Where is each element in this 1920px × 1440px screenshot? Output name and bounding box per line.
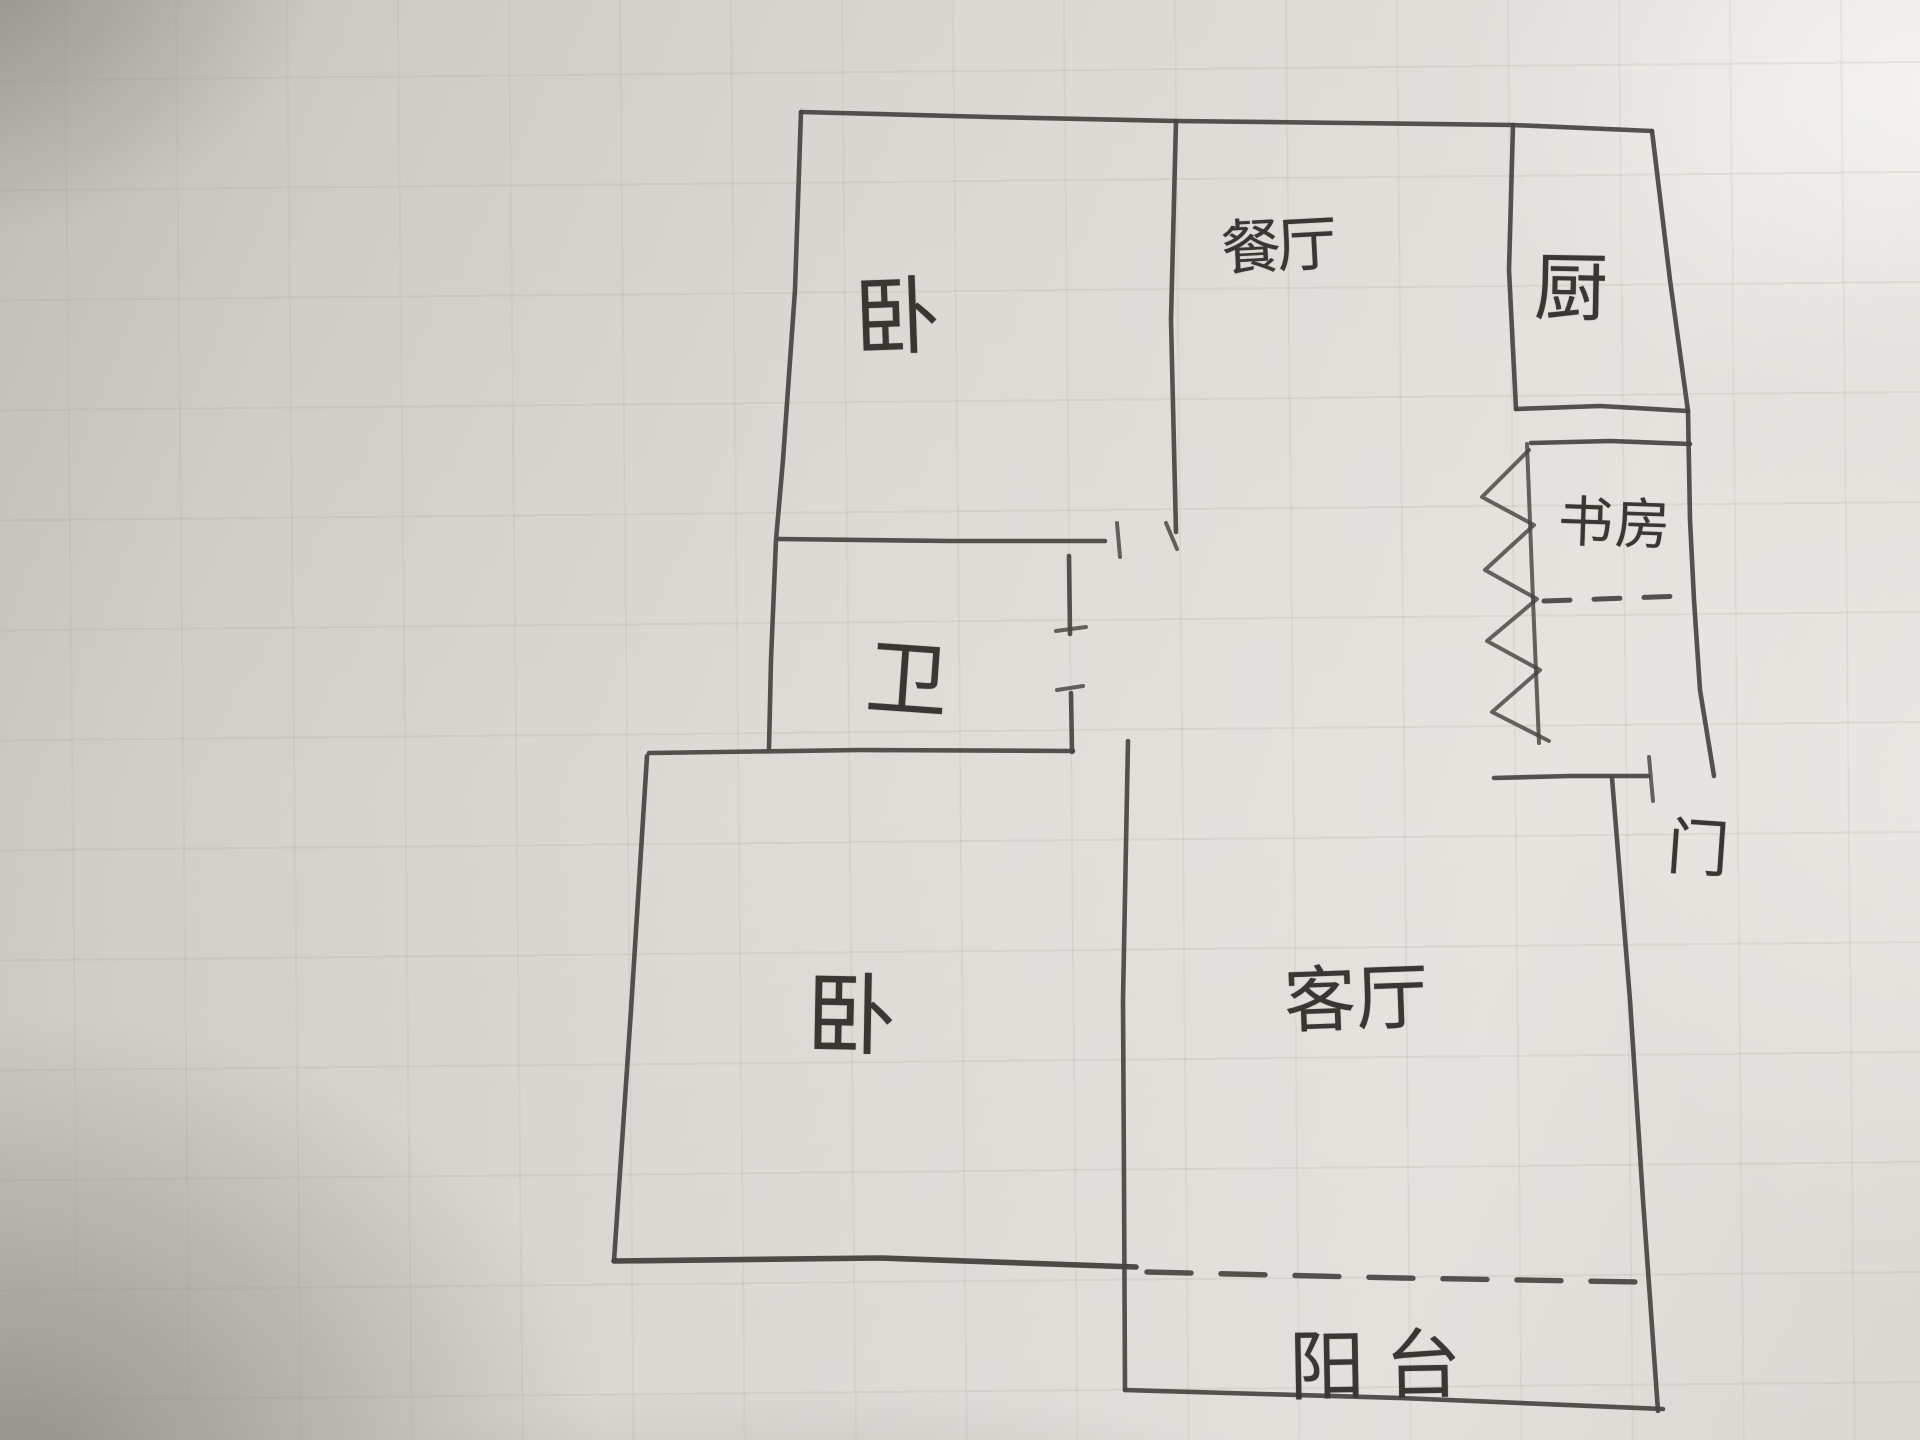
- wall-outline-top: [801, 112, 1652, 131]
- wall-bedroom-bottom-bottom: [614, 1258, 1136, 1267]
- wall-bedroom-bottom-top: [649, 750, 1073, 753]
- room-label-entry-door: 门: [1665, 816, 1731, 882]
- room-label-living: 客厅: [1283, 961, 1429, 1038]
- wall-bedroom-top-bottom: [779, 539, 1105, 541]
- wall-outline-right: [1652, 131, 1714, 776]
- wall-bedroom-living: [1123, 741, 1128, 1390]
- wall-bathroom-right-lower: [1071, 693, 1072, 752]
- wall-kitchen-bottom: [1516, 406, 1688, 411]
- room-label-bathroom: 卫: [863, 637, 951, 725]
- floorplan-svg: [0, 0, 1920, 1440]
- room-label-bedroom-bottom: 卧: [805, 971, 897, 1063]
- room-label-kitchen: 厨: [1533, 251, 1608, 326]
- door-jamb-tick-bedroom-top: [1117, 523, 1120, 557]
- bathroom-door-tick-bottom: [1057, 686, 1083, 690]
- entry-door-jamb-tick: [1649, 757, 1653, 801]
- room-label-dining: 餐厅: [1220, 214, 1335, 280]
- room-label-bedroom-top: 卧: [853, 274, 942, 363]
- wall-living-right: [1612, 778, 1658, 1411]
- study-bottom-dashed-line: [1544, 596, 1683, 601]
- wall-study-top: [1531, 441, 1690, 444]
- bathroom-door-tick-top: [1056, 627, 1086, 631]
- wall-bedroom-dining: [1171, 121, 1176, 532]
- wall-outline-left-upper: [769, 112, 801, 748]
- balcony-sliding-door-dashed-line: [1147, 1272, 1641, 1282]
- room-label-study: 书房: [1557, 495, 1673, 554]
- room-label-balcony: 阳台: [1288, 1326, 1481, 1405]
- wall-dining-kitchen: [1509, 125, 1516, 409]
- wall-outline-left-lower: [614, 756, 647, 1261]
- wall-living-top: [1494, 776, 1648, 778]
- paper-background: 卧 餐厅 厨 书房 卫 卧 客厅 阳台 门: [0, 0, 1920, 1440]
- wall-bathroom-right-upper: [1069, 556, 1070, 634]
